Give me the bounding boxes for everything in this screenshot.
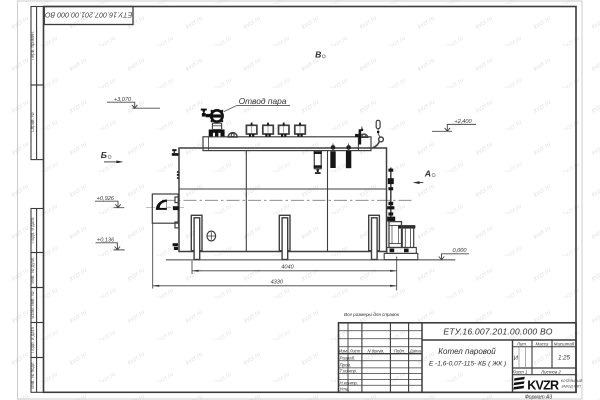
svg-text:ЕТУ.16.007.201.00.000 ВО: ЕТУ.16.007.201.00.000 ВО — [443, 327, 552, 337]
svg-text:ЗАВОД РЭП: ЗАВОД РЭП — [561, 384, 581, 388]
svg-text:Подп. и дата: Подп. и дата — [30, 327, 35, 353]
svg-text:Отвод пара: Отвод пара — [239, 96, 287, 106]
svg-text:Н.контр.: Н.контр. — [340, 380, 359, 385]
svg-text:Котел паровой: Котел паровой — [438, 347, 496, 356]
svg-text:Лист: Лист — [349, 348, 361, 353]
svg-text:Пров.: Пров. — [340, 362, 352, 367]
svg-text:N докум.: N докум. — [368, 348, 385, 353]
svg-text:Подп. и дата: Подп. и дата — [30, 217, 35, 243]
svg-text:А: А — [424, 168, 431, 178]
svg-text:Инв. № подл.: Инв. № подл. — [30, 361, 35, 388]
svg-text:4330: 4330 — [271, 280, 284, 286]
svg-text:1:25: 1:25 — [558, 355, 570, 361]
svg-text:Утв.: Утв. — [340, 387, 350, 392]
svg-text:В: В — [315, 50, 321, 60]
svg-text:Масса: Масса — [536, 342, 550, 347]
svg-text:4040: 4040 — [281, 265, 294, 271]
svg-text:Б: Б — [101, 150, 107, 160]
svg-text:Взам. инв. №: Взам. инв. № — [30, 291, 35, 318]
svg-text:Формат А3: Формат А3 — [525, 394, 553, 400]
svg-text:KVZR: KVZR — [527, 378, 559, 392]
svg-text:Е -1,6-0,07-115- КБ ( ЖК ): Е -1,6-0,07-115- КБ ( ЖК ) — [429, 361, 506, 368]
svg-text:+0,136: +0,136 — [97, 238, 115, 244]
svg-text:Подп.: Подп. — [394, 348, 405, 353]
svg-text:Лит.: Лит. — [516, 342, 527, 347]
svg-text:Листов 2: Листов 2 — [540, 369, 561, 374]
svg-text:Изм: Изм — [339, 348, 347, 353]
svg-text:Перв. примен.: Перв. примен. — [30, 31, 35, 60]
svg-text:Все размеры для справок: Все размеры для справок — [344, 312, 400, 317]
svg-text:И: И — [514, 356, 519, 362]
svg-text:Масштаб: Масштаб — [554, 342, 575, 347]
svg-text:+0,926: +0,926 — [97, 196, 115, 202]
svg-text:0,000: 0,000 — [453, 248, 468, 254]
svg-text:КОТЕЛЬНЫЙ: КОТЕЛЬНЫЙ — [561, 379, 583, 383]
svg-text:ЕТУ.16.007.201.00.000 ВО: ЕТУ.16.007.201.00.000 ВО — [44, 11, 132, 19]
svg-text:Т.контр.: Т.контр. — [340, 368, 358, 373]
svg-text:Дата: Дата — [409, 348, 422, 353]
svg-text:+2,400: +2,400 — [454, 119, 472, 125]
svg-text:Лист 1: Лист 1 — [512, 369, 529, 374]
svg-text:Справ. №: Справ. № — [30, 112, 35, 132]
svg-text:Разраб.: Разраб. — [340, 355, 356, 360]
svg-text:+3,070: +3,070 — [114, 97, 132, 103]
svg-text:Инв. № дубл.: Инв. № дубл. — [30, 256, 35, 283]
